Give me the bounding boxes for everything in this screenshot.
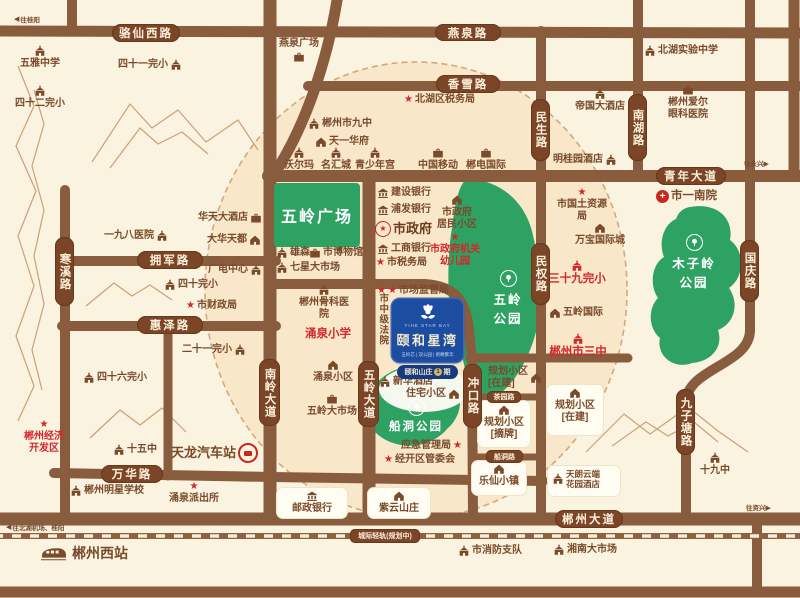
poi-yongquan-primary: 涌泉小学	[305, 328, 351, 342]
arrow-left-icon	[6, 523, 11, 531]
road-label-wuling-dadao: 五岭大道	[358, 361, 379, 427]
road-label-qingnian: 青年大道	[656, 167, 726, 185]
poi-yongquan-police-station: 涌泉派出所	[166, 482, 222, 505]
arrow-to-airport: 往北湖机场、桂阳	[6, 522, 64, 532]
road-label-huize: 惠泽路	[137, 316, 203, 334]
poi-city-museum: 市博物馆	[309, 247, 363, 259]
star-icon	[190, 482, 199, 492]
house-icon	[249, 234, 261, 246]
bank-icon	[377, 187, 389, 199]
poi-15-middle-school: 十五中	[113, 444, 157, 456]
poi-21-primary: 二十一完小	[182, 344, 246, 356]
market-icon	[276, 262, 288, 274]
hotel-icon	[605, 154, 617, 166]
poi-ziyun-villa: 紫云山庄	[379, 490, 419, 515]
hospital-icon	[318, 284, 330, 296]
poi-construction-bank: 建设银行	[377, 187, 431, 199]
road-label-chayuan: 茶园路	[487, 391, 521, 403]
poi-planned-delisted: 规划小区 [摘牌]	[482, 404, 526, 441]
store-icon	[293, 147, 305, 159]
hospital-icon	[156, 230, 168, 242]
poi-gov-residential: 市政府 居民小区	[434, 194, 480, 231]
market-icon	[326, 393, 338, 405]
real-estate-location-map: 骆仙西路 燕泉路 香雪路 青年大道 拥军路 惠泽路 万华路 郴州大道 寒溪路 民…	[0, 0, 800, 598]
road-label-luoxianxi: 骆仙西路	[112, 24, 180, 42]
house-icon	[530, 372, 542, 384]
poi-minggui-hotel: 明桂园酒店	[553, 154, 617, 166]
school-icon	[164, 279, 176, 291]
poi-wuya-middle-school: 五雅中学	[16, 45, 64, 70]
arrow-to-zixing: 往资兴	[746, 502, 771, 512]
poi-wuling-market: 五岭大市场	[307, 393, 357, 418]
tree-icon	[686, 234, 703, 251]
poi-198-hospital: 一九八医院	[104, 230, 168, 242]
poi-46-primary: 四十六完小	[83, 372, 147, 384]
poi-39-primary: 三十九完小	[546, 260, 608, 287]
poi-empire-hotel: 帝国大酒店	[572, 88, 628, 113]
poi-aier-eye-hospital: 郴州爱尔 眼科医院	[662, 84, 714, 121]
poi-beihu-experimental-school: 北湖实验中学	[644, 45, 718, 57]
poi-qixing-market: 七星大市场	[276, 262, 340, 274]
wuling-plaza: 五岭广场	[274, 183, 360, 247]
briefcase-icon	[480, 147, 492, 159]
poi-broadcast-center: 广电中心	[208, 264, 262, 276]
market-icon	[553, 544, 565, 556]
road-label-xiangxue: 香雪路	[436, 75, 500, 93]
school-icon	[234, 344, 246, 356]
poi-xiongsen: 雄森	[276, 247, 310, 259]
star-icon	[384, 455, 393, 465]
poi-xiangnan-market: 湘南大市场	[553, 544, 617, 556]
star-icon	[404, 95, 413, 105]
tree-icon	[500, 270, 517, 287]
road-label-chuandong: 船洞路	[486, 450, 523, 463]
school-icon	[113, 444, 125, 456]
logo-tagline: 五岭芯 | 双公园 | 俯瞰繁华	[401, 352, 453, 358]
school-icon	[571, 260, 583, 272]
poi-spd-bank: 浦发银行	[377, 204, 431, 216]
poi-tianlong-bus-station: 天龙汽车站	[171, 443, 258, 463]
poi-19-middle-school: 十九中	[695, 452, 735, 477]
poi-youth-palace: 青少年宫	[352, 147, 398, 172]
logo-english-name: YIHE STAR BAY	[404, 323, 450, 328]
poi-orthopedic-hospital: 郴州骨科医院	[295, 284, 353, 321]
school-icon	[644, 45, 656, 57]
poi-mingxing-school: 郴州明星学校	[70, 485, 144, 497]
poi-huatian-hotel: 华天大酒店	[198, 212, 262, 224]
road-label-hanxi: 寒溪路	[55, 237, 74, 306]
poi-no3-middle-school: 郴州市三中	[547, 333, 609, 360]
hospital-cross-icon	[656, 190, 669, 203]
gov-star-circle-icon	[375, 221, 391, 237]
road-label-chongkou: 冲口路	[463, 364, 482, 428]
road-label-wanhua: 万华路	[101, 465, 163, 483]
road-label-minquan: 民权路	[531, 243, 550, 305]
poi-land-resources-bureau: 市国土资源局	[553, 188, 611, 223]
muziling-park-label: 木子岭 公园	[668, 234, 720, 291]
school-icon	[34, 45, 46, 57]
arrow-left-icon	[14, 15, 19, 23]
project-logo-yihe-star-bay: YIHE STAR BAY 颐和星湾 五岭芯 | 双公园 | 俯瞰繁华 颐和山庄…	[392, 299, 463, 379]
building-icon	[369, 147, 381, 159]
poi-lexian-town: 乐仙小镇	[477, 463, 521, 488]
tree-icon	[408, 399, 425, 416]
house-icon	[327, 359, 339, 371]
poi-chendian-intl: 郴电国际	[463, 147, 509, 172]
star-icon	[453, 441, 462, 451]
hotel-icon	[594, 88, 606, 100]
poi-chenzhou-west-station: 郴州西站	[40, 545, 128, 562]
poi-icbc-bank: 工商银行	[377, 243, 431, 255]
rail-label-qinggui: 城际轻轨(规划中)	[350, 529, 420, 543]
house-icon	[549, 307, 561, 319]
briefcase-icon	[432, 147, 444, 159]
poi-city-government: 市政府	[375, 221, 432, 237]
chuandong-park-label: 船洞公园	[386, 399, 446, 434]
poi-china-mobile: 中国移动	[415, 147, 461, 172]
poi-yongquan-community: 涌泉小区	[311, 359, 355, 384]
poi-dahua-tiandu: 大华天都	[207, 234, 261, 246]
bank-icon	[377, 243, 389, 255]
train-icon	[40, 546, 67, 561]
hotel-icon	[552, 473, 564, 485]
poi-fire-brigade: 市消防支队	[458, 545, 522, 557]
road-label-minsheng: 民生路	[531, 99, 550, 161]
magnolia-flower-icon	[416, 302, 440, 322]
poi-beihu-tax-bureau: 北湖区税务局	[404, 94, 475, 106]
building-icon	[276, 247, 288, 259]
star-icon	[578, 188, 587, 198]
poi-no9-middle-school: 郴州市九中	[308, 118, 372, 130]
poi-development-zone-committee: 经开区管委会	[384, 454, 455, 466]
poi-finance-bureau: 市财政局	[186, 300, 237, 312]
star-icon	[376, 258, 385, 268]
logo-chinese-name: 颐和星湾	[396, 330, 458, 349]
star-icon	[388, 286, 397, 296]
star-icon	[186, 301, 195, 311]
road-label-yongjun: 拥军路	[137, 251, 203, 269]
road-label-jiuzitang: 九子塘路	[676, 389, 695, 455]
star-icon	[40, 420, 49, 430]
arrow-right-icon: 往资兴	[746, 502, 771, 512]
poi-yanquan-square: 燕泉广场	[276, 38, 322, 63]
wuling-park-label: 五岭 公园	[486, 270, 530, 327]
poi-city-south-hospital: 市一南院	[656, 190, 717, 204]
hotel-icon	[250, 212, 262, 224]
poi-planned-under-construction-2: 规划小区 [在建]	[551, 387, 599, 424]
school-icon	[70, 485, 82, 497]
house-icon	[498, 404, 510, 416]
poi-intermediate-court: 市中级法院	[377, 293, 388, 346]
house-icon	[569, 387, 581, 399]
star-icon	[451, 233, 460, 243]
house-icon	[594, 222, 606, 234]
poi-emergency-bureau: 应急管理局	[401, 440, 462, 452]
poi-tianlang-hotel: 天朗云端 花园酒店	[552, 469, 600, 489]
poi-tax-bureau: 市税务局	[376, 257, 427, 269]
house-icon	[448, 388, 460, 400]
bus-station-icon	[238, 443, 258, 463]
arrow-right-icon: 往永兴	[744, 158, 769, 168]
school-icon	[572, 333, 584, 345]
logo-panel: YIHE STAR BAY 颐和星湾 五岭芯 | 双公园 | 俯瞰繁华	[392, 299, 463, 362]
logo-phase-badge: 颐和山庄1期	[397, 365, 458, 379]
poi-42-primary: 四十二完小	[14, 85, 66, 110]
poi-wuling-intl: 五岭国际	[549, 307, 603, 319]
hotel-icon	[379, 376, 391, 388]
school-icon	[170, 59, 182, 71]
school-icon	[709, 452, 721, 464]
bank-icon	[306, 490, 318, 502]
poi-walmart: 沃尔玛	[281, 147, 317, 172]
road-label-chenzhou-dadao: 郴州大道	[555, 510, 623, 528]
arrow-to-yongxing: 往永兴	[744, 158, 769, 168]
poi-planned-under-construction-1: 规划小区 [在建]	[488, 366, 542, 390]
poi-40-primary: 四十完小	[164, 279, 218, 291]
poi-residential-area: 住宅小区	[406, 388, 460, 400]
poi-wanbao-intl-city: 万宝国际城	[574, 222, 626, 247]
bank-icon	[377, 204, 389, 216]
house-icon	[451, 194, 463, 206]
road-label-guoqing: 国庆路	[740, 240, 759, 302]
poi-minghui-city: 名汇城	[317, 147, 355, 172]
road-label-nanhu: 南湖路	[628, 94, 647, 161]
house-icon	[493, 463, 505, 475]
poi-41-primary: 四十一完小	[118, 59, 182, 71]
building-icon	[458, 545, 470, 557]
road-label-yanquan: 燕泉路	[435, 24, 501, 41]
house-icon	[393, 490, 405, 502]
museum-icon	[309, 247, 321, 259]
school-icon	[308, 118, 320, 130]
building-icon	[250, 264, 262, 276]
hospital-icon	[682, 84, 694, 96]
arrow-to-guiyang: 往桂阳	[14, 14, 40, 24]
phase-number-icon: 1	[434, 368, 442, 376]
mall-icon	[293, 51, 305, 63]
road-label-nanling-dadao: 南岭大道	[259, 359, 280, 426]
store-icon	[330, 147, 342, 159]
poi-postal-bank: 邮政银行	[288, 490, 336, 515]
school-icon	[83, 372, 95, 384]
school-icon	[34, 85, 46, 97]
poi-gov-kindergarten: 市政府机关 幼儿园	[428, 233, 482, 268]
poi-economic-development-zone: 郴州经济 开发区	[18, 420, 70, 455]
